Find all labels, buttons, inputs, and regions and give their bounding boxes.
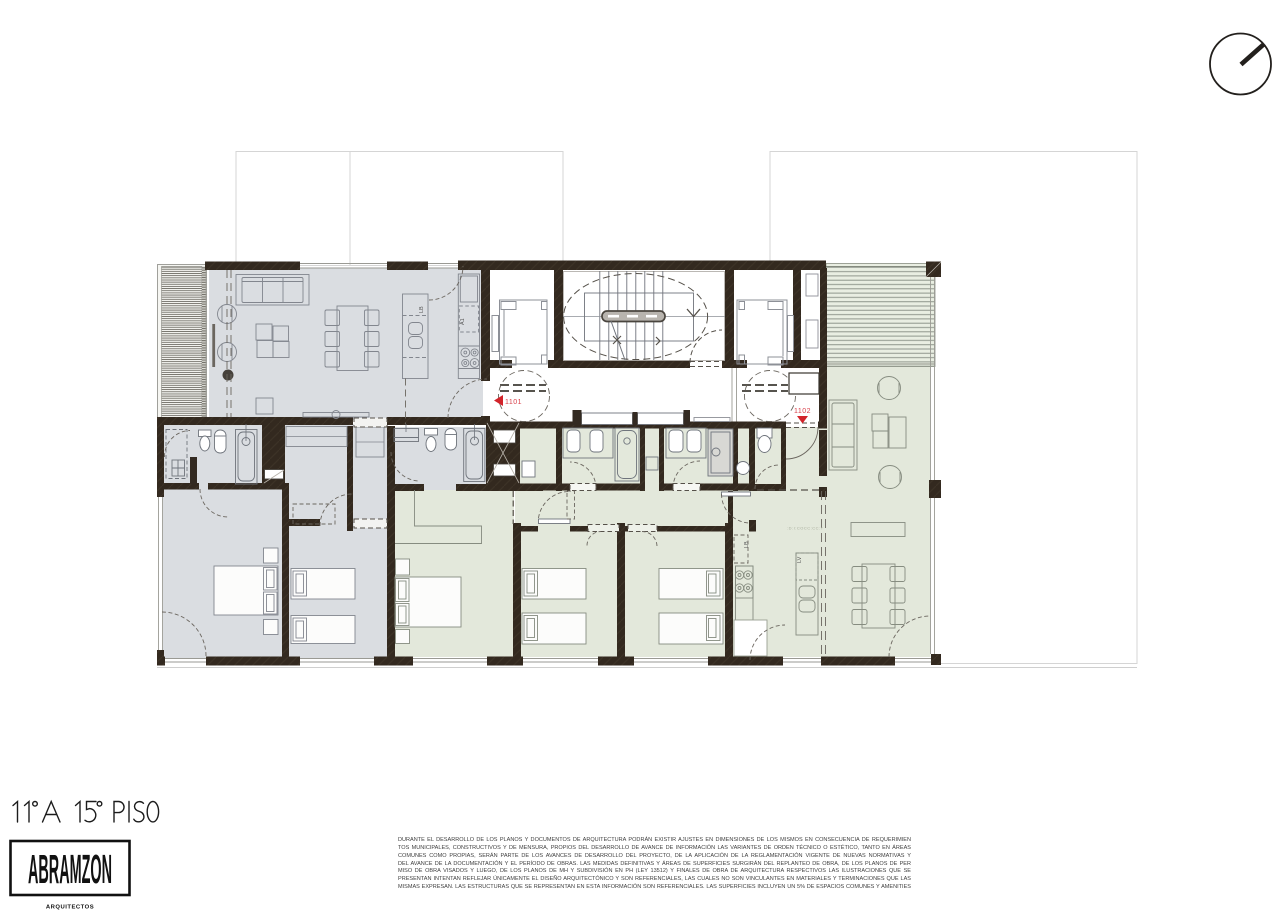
svg-text:1102: 1102: [794, 408, 811, 415]
svg-text:LB: LB: [419, 306, 425, 313]
svg-text::D:I:COCC:CC:T: :D:I:COCC:CC:T: [787, 526, 824, 531]
svg-text:A1: A1: [460, 318, 466, 325]
svg-text:1101: 1101: [505, 399, 522, 406]
svg-text:ABRAMZON: ABRAMZON: [28, 846, 112, 892]
svg-text:LB: LB: [744, 541, 750, 548]
svg-text:LV: LV: [797, 556, 803, 563]
svg-text:ARQUITECTOS: ARQUITECTOS: [46, 905, 94, 911]
